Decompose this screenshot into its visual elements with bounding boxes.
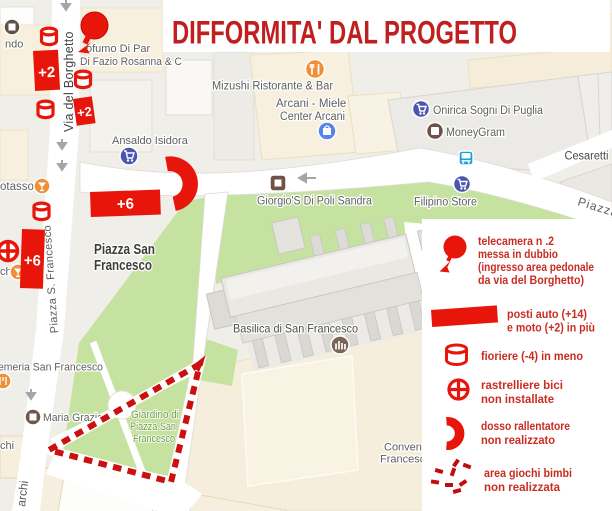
- svg-text:telecamera n .2: telecamera n .2: [478, 234, 554, 248]
- svg-text:DIFFORMITA' DAL PROGETTO: DIFFORMITA' DAL PROGETTO: [172, 15, 517, 51]
- svg-text:Onirica Sogni Di Puglia: Onirica Sogni Di Puglia: [433, 105, 544, 117]
- svg-text:Center Arcani: Center Arcani: [280, 111, 345, 123]
- svg-text:dosso rallentatore: dosso rallentatore: [481, 419, 570, 433]
- svg-text:Basilica di San Francesco: Basilica di San Francesco: [233, 322, 358, 336]
- svg-text:chi: chi: [0, 440, 14, 452]
- svg-text:area giochi bimbi: area giochi bimbi: [484, 466, 572, 480]
- svg-text:Arcani - Miele: Arcani - Miele: [276, 98, 346, 110]
- svg-text:Convent: Convent: [384, 442, 425, 454]
- svg-text:MoneyGram: MoneyGram: [446, 125, 505, 139]
- svg-text:Giardino di: Giardino di: [131, 409, 179, 421]
- svg-text:Francesco: Francesco: [94, 257, 152, 274]
- svg-text:ofumo Di Par: ofumo Di Par: [86, 43, 151, 55]
- svg-text:Piazza San: Piazza San: [94, 241, 155, 258]
- svg-text:(ingresso area pedonale: (ingresso area pedonale: [478, 260, 594, 274]
- svg-text:+6: +6: [117, 195, 135, 213]
- svg-text:non installate: non installate: [481, 392, 554, 406]
- svg-text:e moto (+2) in più: e moto (+2) in più: [507, 321, 595, 335]
- svg-text:ndo: ndo: [5, 39, 23, 51]
- svg-text:fioriere (-4) in meno: fioriere (-4) in meno: [481, 349, 583, 363]
- svg-text:emeria San Francesco: emeria San Francesco: [0, 362, 103, 374]
- svg-text:Piazza San: Piazza San: [130, 421, 176, 433]
- svg-text:Mizushi Ristorante & Bar: Mizushi Ristorante & Bar: [212, 81, 333, 93]
- svg-text:posti auto (+14): posti auto (+14): [507, 307, 587, 321]
- svg-text:non realizzato: non realizzato: [481, 433, 555, 447]
- svg-text:Francesco: Francesco: [133, 433, 175, 445]
- svg-text:rastrelliere bici: rastrelliere bici: [481, 378, 563, 392]
- svg-text:Ansaldo Isidora: Ansaldo Isidora: [112, 135, 189, 147]
- svg-text:non realizzata: non realizzata: [484, 480, 560, 494]
- svg-text:da via del Borghetto): da via del Borghetto): [478, 273, 584, 287]
- svg-text:+2: +2: [38, 64, 56, 82]
- svg-text:Giorgio'S Di Poli Sandra: Giorgio'S Di Poli Sandra: [257, 196, 373, 208]
- svg-text:+6: +6: [24, 252, 42, 270]
- svg-text:+2: +2: [76, 104, 93, 121]
- svg-text:Di Fazio Rosanna & C: Di Fazio Rosanna & C: [80, 56, 182, 68]
- svg-text:messa in dubbio: messa in dubbio: [478, 247, 558, 261]
- svg-text:Cesaretti: Cesaretti: [565, 151, 609, 163]
- svg-text:otasso: otasso: [0, 181, 34, 193]
- svg-text:Filipino Store: Filipino Store: [414, 197, 477, 209]
